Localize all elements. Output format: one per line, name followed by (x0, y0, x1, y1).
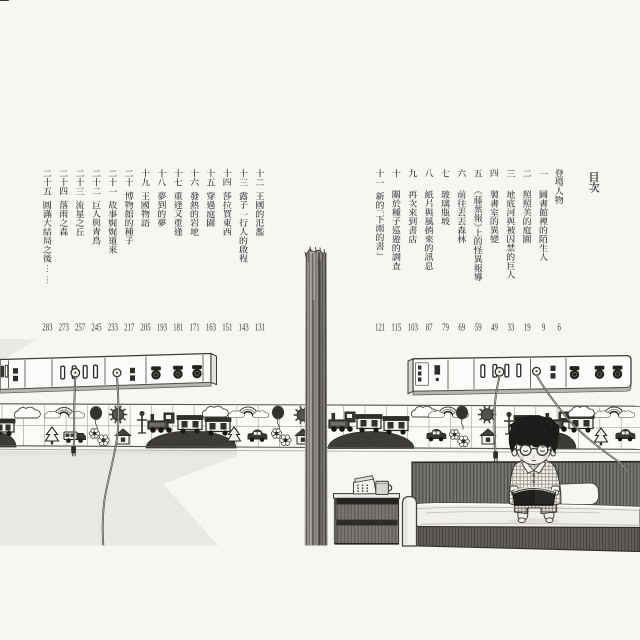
svg-text:181: 181 (173, 321, 183, 333)
svg-text:19: 19 (524, 321, 531, 333)
svg-text:121: 121 (375, 321, 385, 333)
svg-text:273: 273 (59, 321, 70, 333)
svg-text:49: 49 (491, 321, 498, 333)
svg-text:115: 115 (391, 321, 401, 333)
svg-text:163: 163 (206, 321, 217, 333)
svg-text:79: 79 (442, 321, 449, 333)
svg-text:143: 143 (238, 321, 249, 333)
svg-text:87: 87 (426, 321, 433, 333)
svg-text:151: 151 (222, 321, 232, 333)
svg-text:193: 193 (157, 321, 168, 333)
svg-text:33: 33 (507, 321, 514, 333)
svg-text:69: 69 (458, 321, 465, 333)
svg-text:9: 9 (542, 321, 546, 333)
svg-text:245: 245 (91, 321, 102, 333)
svg-text:283: 283 (42, 321, 53, 333)
svg-text:131: 131 (255, 321, 265, 333)
svg-text:6: 6 (557, 321, 561, 333)
svg-text:217: 217 (124, 321, 135, 333)
svg-text:59: 59 (475, 321, 482, 333)
svg-text:103: 103 (408, 321, 419, 333)
svg-text:233: 233 (108, 321, 119, 333)
svg-text:257: 257 (75, 321, 86, 333)
svg-text:205: 205 (140, 321, 151, 333)
svg-text:171: 171 (189, 321, 199, 333)
